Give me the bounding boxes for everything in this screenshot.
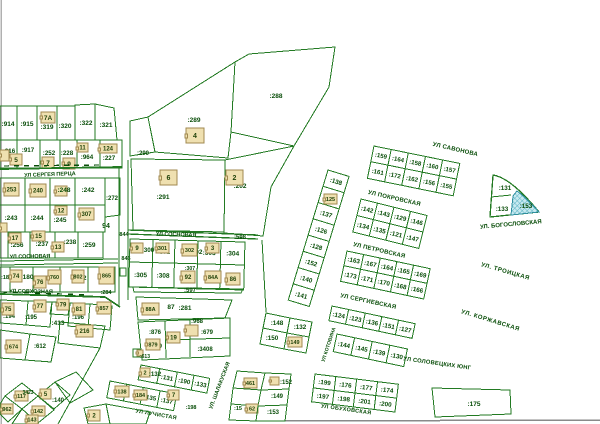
svg-text:84А: 84А — [208, 275, 218, 281]
svg-text::150: :150 — [266, 335, 279, 342]
svg-text::152: :152 — [280, 380, 293, 386]
svg-text::153: :153 — [520, 203, 533, 210]
svg-text:76: 76 — [37, 280, 44, 286]
svg-text:307: 307 — [81, 212, 92, 218]
svg-text::319: :319 — [40, 124, 53, 131]
svg-text:2: 2 — [233, 175, 237, 182]
svg-text::290: :290 — [137, 151, 150, 157]
svg-text:79: 79 — [60, 303, 67, 309]
svg-text::917: :917 — [22, 147, 35, 154]
svg-text:3423: 3423 — [22, 390, 33, 396]
svg-text::914: :914 — [1, 121, 14, 128]
svg-text:86: 86 — [230, 277, 237, 283]
svg-text:74: 74 — [13, 274, 20, 280]
svg-text:149: 149 — [290, 340, 299, 346]
svg-text:865: 865 — [102, 274, 111, 280]
svg-text:124: 124 — [103, 147, 114, 153]
svg-text:302: 302 — [185, 248, 194, 254]
svg-text::598: :598 — [234, 235, 247, 241]
svg-text:19: 19 — [170, 336, 177, 342]
svg-text::196: :196 — [72, 315, 85, 321]
svg-text:62: 62 — [249, 407, 255, 413]
svg-text:92: 92 — [185, 275, 192, 281]
svg-text::243: :243 — [4, 215, 17, 222]
svg-text::133: :133 — [496, 206, 509, 213]
svg-text::284: :284 — [100, 290, 112, 296]
svg-text::227: :227 — [103, 155, 116, 162]
svg-text:674: 674 — [9, 345, 19, 351]
svg-text:15: 15 — [35, 234, 42, 240]
svg-text::291: :291 — [156, 194, 169, 201]
svg-text:7А: 7А — [44, 115, 53, 122]
svg-text::180: :180 — [20, 274, 33, 281]
svg-text::321: :321 — [99, 122, 112, 129]
svg-text:184: 184 — [136, 393, 146, 399]
svg-text::18: :18 — [1, 275, 9, 281]
svg-text:17: 17 — [12, 236, 19, 242]
svg-text:760: 760 — [50, 275, 59, 281]
svg-text::876: :876 — [149, 330, 162, 336]
svg-text:75: 75 — [5, 307, 12, 313]
svg-text:802: 802 — [73, 275, 82, 281]
svg-text::131: :131 — [499, 185, 512, 192]
svg-text:4: 4 — [193, 133, 197, 140]
svg-text::308: :308 — [156, 273, 170, 280]
svg-text::237: :237 — [35, 241, 48, 248]
svg-text:138: 138 — [117, 390, 126, 396]
svg-text:УЛ СОВХОЗНАЯ: УЛ СОВХОЗНАЯ — [9, 289, 53, 296]
svg-text::132: :132 — [294, 324, 307, 331]
svg-text::15: :15 — [234, 406, 242, 412]
svg-text:844: 844 — [119, 232, 129, 238]
svg-text:87: 87 — [167, 304, 175, 311]
svg-text::195: :195 — [25, 315, 38, 321]
svg-text::238: :238 — [64, 239, 77, 246]
svg-text:253: 253 — [6, 188, 17, 194]
svg-text:УЛ СОСНОВАЯ: УЛ СОСНОВАЯ — [10, 254, 51, 261]
svg-text::259: :259 — [82, 242, 95, 249]
svg-text:5: 5 — [14, 157, 18, 164]
svg-text:962: 962 — [2, 407, 11, 413]
svg-text::320: :320 — [58, 123, 71, 130]
svg-text:125: 125 — [326, 197, 335, 203]
svg-text::148: :148 — [271, 320, 284, 327]
svg-text:13: 13 — [55, 245, 62, 251]
svg-text::288: :288 — [269, 93, 282, 100]
svg-text::679: :679 — [201, 330, 214, 336]
svg-text::413: :413 — [51, 320, 64, 327]
svg-text::307: :307 — [185, 266, 195, 272]
svg-text:77: 77 — [37, 304, 44, 310]
svg-text::245: :245 — [53, 217, 66, 224]
svg-text:11: 11 — [79, 146, 86, 152]
svg-text:6: 6 — [167, 175, 171, 182]
svg-text::153: :153 — [267, 410, 280, 416]
svg-text:240: 240 — [33, 189, 44, 195]
svg-text:143: 143 — [27, 418, 36, 424]
svg-text::304: :304 — [226, 250, 240, 257]
svg-text::242: :242 — [81, 187, 94, 194]
svg-text::613: :613 — [140, 354, 150, 360]
svg-text::3408: :3408 — [197, 347, 213, 353]
svg-text:216: 216 — [79, 329, 90, 335]
svg-text::300: :300 — [142, 247, 155, 254]
svg-text::252: :252 — [43, 150, 56, 157]
svg-text::612: :612 — [34, 344, 47, 350]
svg-text:88А: 88А — [145, 307, 155, 313]
svg-text:12: 12 — [58, 209, 65, 215]
svg-text:9: 9 — [67, 161, 71, 168]
svg-text::244: :244 — [30, 215, 43, 222]
svg-text:301: 301 — [158, 246, 167, 252]
svg-text:81: 81 — [76, 307, 83, 313]
svg-text:879: 879 — [148, 343, 157, 349]
svg-text::322: :322 — [79, 120, 92, 127]
svg-text:857: 857 — [99, 306, 108, 312]
svg-text::175: :175 — [467, 401, 480, 408]
svg-text::248: :248 — [57, 187, 70, 194]
svg-text:94: 94 — [102, 223, 110, 230]
svg-text::915: :915 — [20, 121, 33, 128]
svg-text::305: :305 — [134, 272, 148, 279]
svg-text:461: 461 — [246, 381, 255, 387]
svg-text::964: :964 — [81, 154, 94, 161]
svg-text::132: :132 — [149, 371, 162, 378]
svg-text:2: 2 — [143, 371, 146, 377]
svg-text::149: :149 — [271, 394, 284, 400]
svg-text:142: 142 — [34, 409, 43, 415]
svg-text::140: :140 — [52, 398, 65, 404]
svg-text::968: :968 — [191, 319, 204, 325]
svg-text::228: :228 — [61, 150, 74, 157]
svg-text::272: :272 — [106, 196, 119, 202]
svg-text::198: :198 — [185, 405, 196, 411]
svg-text::289: :289 — [187, 117, 200, 124]
svg-text::281: :281 — [178, 305, 191, 312]
svg-text::597: :597 — [184, 288, 197, 294]
